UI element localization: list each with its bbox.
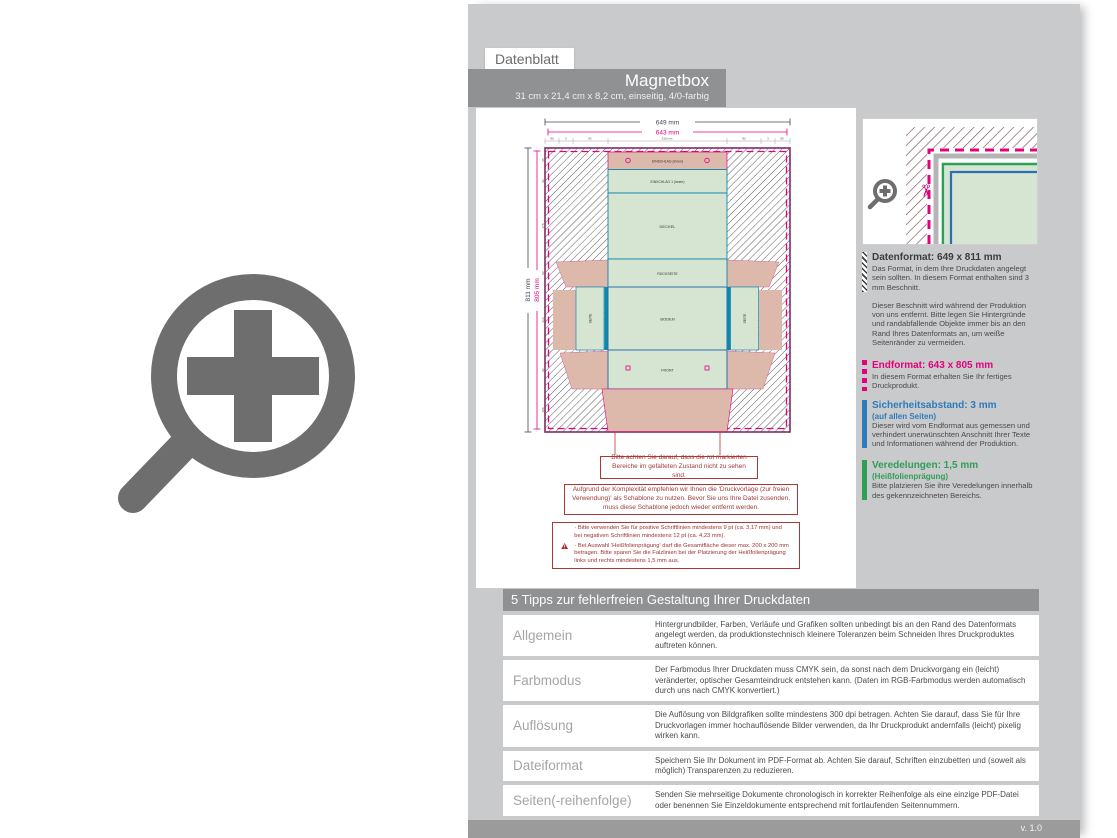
svg-text:3: 3	[767, 137, 769, 141]
tip-label-dateiformat: Dateiformat	[503, 751, 655, 782]
table-row: Seiten(-reihenfolge) Senden Sie mehrseit…	[503, 785, 1039, 816]
panel-bottom-flap	[602, 389, 733, 432]
label-front: FRONT	[661, 369, 674, 373]
beschnitt-body: Dieser Beschnitt wird während der Produk…	[872, 301, 1038, 347]
table-row: Dateiformat Speichern Sie Ihr Dokument i…	[503, 751, 1039, 782]
page-title: Magnetbox	[468, 69, 709, 91]
section-veredelungen: Veredelungen: 1,5 mm (Heißfolienprägung)…	[862, 460, 1038, 500]
flap-mid-left-outer	[553, 290, 576, 350]
dim-label-811: 811 mm	[525, 279, 532, 302]
dieline-panel: 649 mm 643 mm 80 3 82 310 mm 82 3	[476, 108, 856, 588]
label-top-flap2: EINSCHLAG 1 (innen)	[651, 180, 685, 184]
product-subtitle: 31 cm x 21,4 cm x 8,2 cm, einseitig, 4/0…	[468, 91, 709, 102]
svg-text:80: 80	[550, 137, 554, 141]
svg-text:3: 3	[565, 137, 567, 141]
fold-strip-right	[727, 287, 731, 350]
warning-box: · Bitte verwenden Sie für positive Schri…	[552, 522, 800, 569]
dim-label-805: 805 mm	[534, 278, 541, 301]
datenformat-title: Datenformat: 649 x 811 mm	[872, 252, 1038, 263]
tip-label-aufloesung: Auflösung	[503, 705, 655, 746]
detail-safe-area-fill	[945, 165, 1037, 244]
section-endformat: Endformat: 643 x 805 mm In diesem Format…	[862, 360, 1038, 391]
corner-detail-drawing: ✂	[863, 119, 1037, 244]
warning-bullet-1: · Bitte verwenden Sie für positive Schri…	[574, 525, 791, 541]
label-lid: DECKEL	[659, 224, 676, 229]
datenblatt-tab: Datenblatt	[485, 48, 574, 71]
note-red-areas: Bitte achten Sie darauf, dass die rot ma…	[600, 456, 758, 479]
table-row: Allgemein Hintergrundbilder, Farben, Ver…	[503, 615, 1039, 656]
label-bottom: BODEN	[660, 317, 674, 322]
detail-bleed-hatch-horizontal	[906, 127, 1037, 148]
datenformat-body: Das Format, in dem Ihre Druckdaten angel…	[872, 264, 1038, 292]
leader-lines	[615, 432, 720, 455]
tip-text-farbmodus: Der Farbmodus Ihrer Druckdaten muss CMYK…	[655, 660, 1039, 701]
label-top-flap: EINSCHLAG (innen)	[652, 160, 683, 164]
datasheet-page: Datenblatt Magnetbox 31 cm x 21,4 cm x 8…	[468, 4, 1080, 838]
label-side-right: SEITE	[743, 313, 747, 324]
label-side-left: SEITE	[589, 313, 593, 324]
small-magnifier-icon	[870, 181, 895, 207]
section-beschnitt: Dieser Beschnitt wird während der Produk…	[862, 301, 1038, 347]
zoom-plus-icon[interactable]	[100, 262, 410, 542]
tip-label-farbmodus: Farbmodus	[503, 660, 655, 701]
product-header-bar: Magnetbox 31 cm x 21,4 cm x 8,2 cm, eins…	[468, 69, 726, 107]
sicherheitsabstand-subtitle: (auf allen Seiten)	[872, 412, 1038, 421]
plus-vertical	[234, 310, 272, 442]
section-sicherheitsabstand: Sicherheitsabstand: 3 mm (auf allen Seit…	[862, 400, 1038, 449]
label-back: RÜCKSEITE	[657, 272, 678, 276]
zoom-detail-box: ✂	[862, 118, 1038, 245]
fold-strip-left	[605, 287, 609, 350]
tips-header: 5 Tipps zur fehlerfreien Gestaltung Ihre…	[503, 589, 1039, 611]
svg-text:80: 80	[780, 137, 784, 141]
tip-text-seitenreihenfolge: Senden Sie mehrseitige Dokumente chronol…	[655, 785, 1039, 816]
sicherheitsabstand-title: Sicherheitsabstand: 3 mm	[872, 400, 1038, 411]
version-label: v. 1.0	[1021, 823, 1042, 833]
tip-text-allgemein: Hintergrundbilder, Farben, Verläufe und …	[655, 615, 1039, 656]
dim-label-649: 649 mm	[656, 120, 679, 127]
magnifier-handle	[133, 443, 186, 498]
datenformat-accent-bar	[862, 252, 867, 292]
svg-text:310 mm: 310 mm	[662, 137, 673, 141]
warning-triangle-icon	[561, 538, 568, 554]
endformat-accent-bar	[862, 360, 867, 391]
warning-bullet-2: · Bei Auswahl 'Heißfolienprägung' darf d…	[574, 543, 791, 566]
endformat-body: In diesem Format erhalten Sie Ihr fertig…	[872, 372, 1038, 391]
segment-labels-top: 80 3 82 310 mm 82 3 80	[550, 137, 784, 141]
dieline-drawing: 649 mm 643 mm 80 3 82 310 mm 82 3	[476, 108, 856, 456]
section-datenformat: Datenformat: 649 x 811 mm Das Format, in…	[862, 252, 1038, 292]
veredelungen-subtitle: (Heißfolienprägung)	[872, 472, 1038, 481]
tip-text-aufloesung: Die Auflösung von Bildgrafiken sollte mi…	[655, 705, 1039, 746]
tip-label-allgemein: Allgemein	[503, 615, 655, 656]
scissors-icon: ✂	[916, 184, 935, 198]
table-row: Auflösung Die Auflösung von Bildgrafiken…	[503, 705, 1039, 746]
veredelungen-body: Bitte platzieren Sie ihre Veredelungen i…	[872, 481, 1038, 500]
tip-label-seitenreihenfolge: Seiten(-reihenfolge)	[503, 785, 655, 816]
endformat-title: Endformat: 643 x 805 mm	[872, 360, 1038, 371]
veredelungen-accent-bar	[862, 460, 867, 500]
svg-text:82: 82	[742, 137, 746, 141]
svg-text:82: 82	[588, 137, 592, 141]
sicherheitsabstand-accent-bar	[862, 400, 867, 449]
dim-label-643: 643 mm	[656, 130, 679, 137]
note-template: Aufgrund der Komplexität empfehlen wir I…	[564, 484, 798, 515]
table-row: Farbmodus Der Farbmodus Ihrer Druckdaten…	[503, 660, 1039, 701]
sicherheitsabstand-body: Dieser wird vom Endformat aus gemessen u…	[872, 421, 1038, 449]
version-footer: v. 1.0	[468, 820, 1080, 838]
tip-text-dateiformat: Speichern Sie Ihr Dokument im PDF-Format…	[655, 751, 1039, 782]
tips-table: 5 Tipps zur fehlerfreien Gestaltung Ihre…	[503, 589, 1039, 816]
veredelungen-title: Veredelungen: 1,5 mm	[872, 460, 1038, 471]
flap-mid-right-outer	[759, 290, 782, 350]
